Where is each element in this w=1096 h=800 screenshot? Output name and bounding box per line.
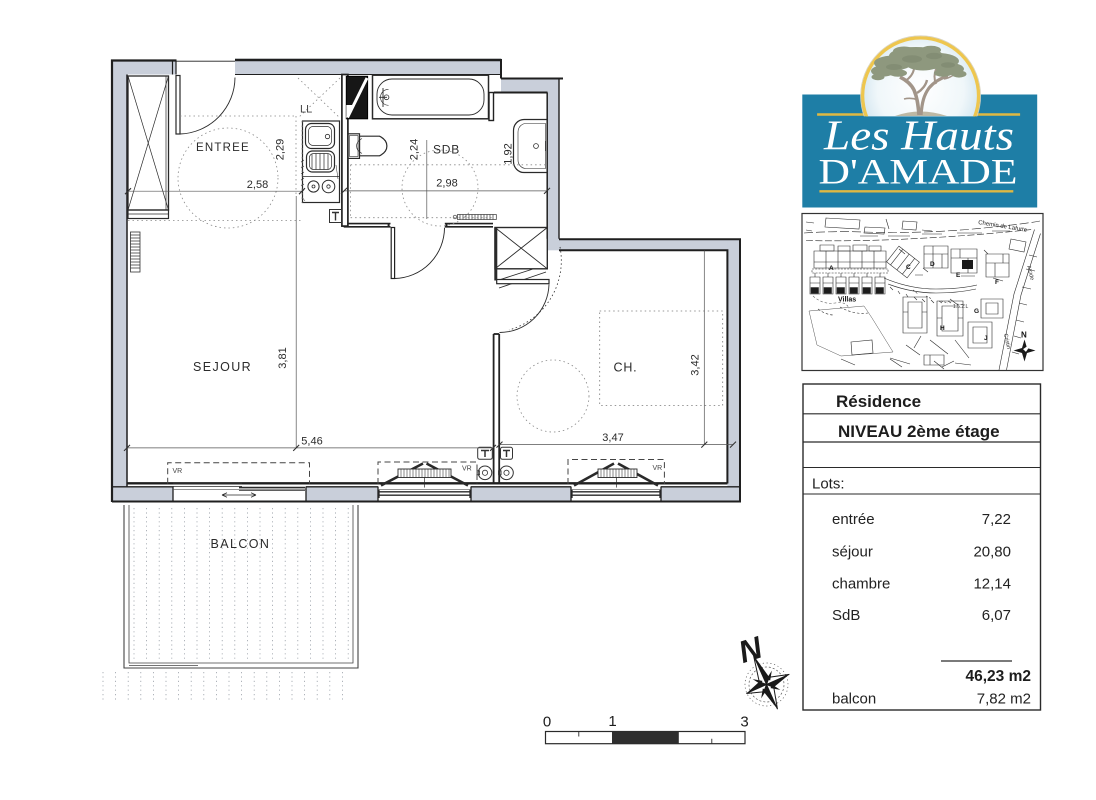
svg-text:chambre: chambre: [832, 576, 890, 593]
svg-text:F: F: [995, 279, 999, 286]
svg-text:SEJOUR: SEJOUR: [193, 360, 252, 374]
svg-text:VR: VR: [173, 468, 183, 475]
svg-text:VR: VR: [462, 466, 472, 473]
svg-text:Villas: Villas: [838, 297, 856, 304]
svg-text:1: 1: [608, 713, 616, 730]
svg-text:D'AMADE: D'AMADE: [819, 152, 1018, 192]
svg-text:A: A: [829, 265, 834, 272]
svg-text:balcon: balcon: [832, 691, 876, 708]
svg-text:N: N: [1021, 331, 1027, 340]
svg-text:Résidence: Résidence: [836, 392, 921, 411]
svg-text:0: 0: [543, 714, 551, 731]
svg-text:1,92: 1,92: [503, 143, 515, 164]
svg-text:J: J: [984, 335, 988, 342]
svg-text:6,07: 6,07: [982, 607, 1011, 624]
svg-text:NIVEAU 2ème étage: NIVEAU 2ème étage: [838, 422, 1000, 441]
svg-text:D: D: [930, 261, 935, 268]
svg-text:G: G: [974, 308, 979, 315]
svg-text:H: H: [940, 325, 945, 332]
svg-text:séjour: séjour: [832, 544, 873, 561]
svg-text:entrée: entrée: [832, 511, 875, 528]
svg-text:20,80: 20,80: [973, 544, 1011, 561]
svg-text:Lots:: Lots:: [812, 476, 845, 493]
svg-text:5,46: 5,46: [301, 436, 322, 448]
svg-text:2,58: 2,58: [247, 179, 268, 191]
svg-text:1.5.2.L: 1.5.2.L: [953, 304, 969, 310]
svg-text:LL: LL: [300, 104, 312, 116]
svg-text:2,98: 2,98: [436, 178, 457, 190]
svg-text:7,82 m2: 7,82 m2: [977, 691, 1031, 708]
svg-text:C: C: [906, 264, 911, 271]
svg-text:2,29: 2,29: [275, 139, 287, 160]
svg-text:3: 3: [740, 714, 748, 731]
svg-text:46,23 m2: 46,23 m2: [966, 668, 1032, 685]
svg-text:BALCON: BALCON: [211, 537, 271, 551]
svg-text:3,42: 3,42: [690, 354, 702, 375]
svg-text:12,14: 12,14: [973, 576, 1011, 593]
svg-text:2,24: 2,24: [409, 139, 421, 160]
svg-text:SDB: SDB: [433, 143, 460, 157]
svg-text:E: E: [956, 272, 961, 279]
svg-text:CH.: CH.: [614, 361, 638, 375]
svg-text:ENTREE: ENTREE: [196, 142, 250, 154]
svg-text:SdB: SdB: [832, 607, 860, 624]
svg-text:3,47: 3,47: [602, 432, 623, 444]
svg-text:3,81: 3,81: [277, 347, 289, 368]
svg-text:VR: VR: [653, 465, 663, 472]
svg-text:7,22: 7,22: [982, 511, 1011, 528]
